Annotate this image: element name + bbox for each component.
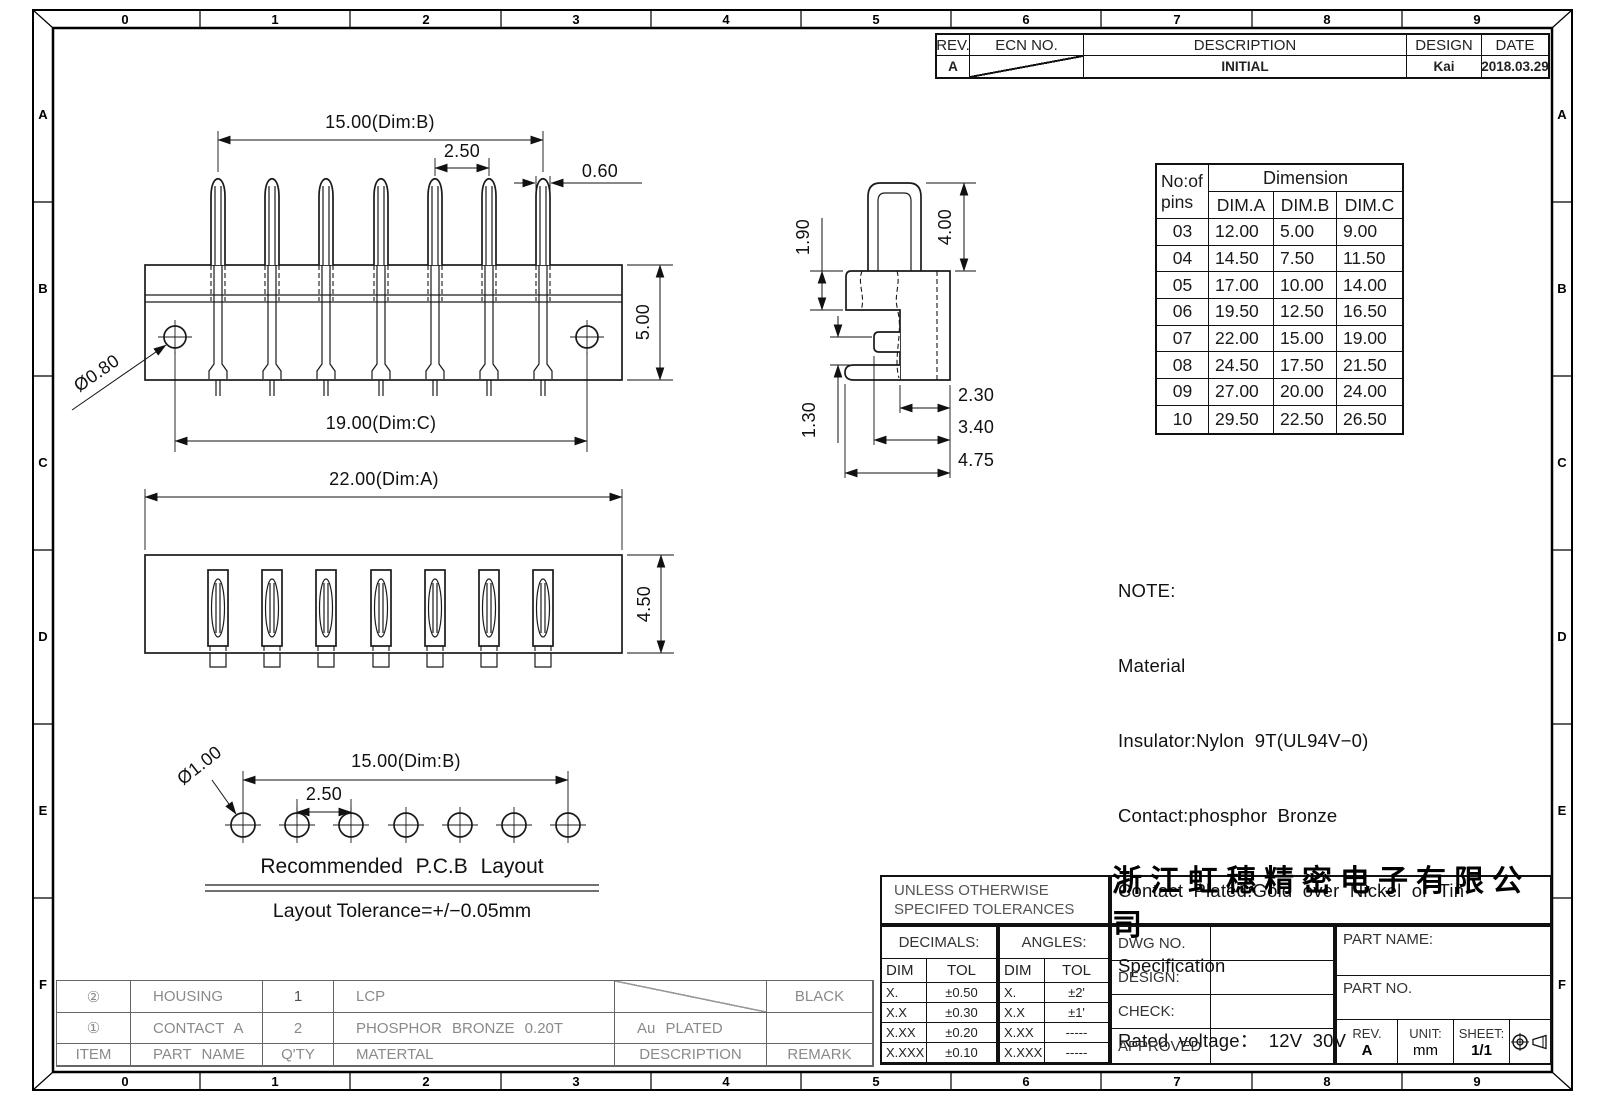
ecn-header: ECN NO. (970, 35, 1084, 56)
dimension-group-header: Dimension (1209, 165, 1402, 192)
sheet-value: 1/1 (1471, 1042, 1492, 1059)
cell: 12.50 (1274, 299, 1337, 326)
design-value (1211, 961, 1333, 994)
top-view: 22.00(Dim:A) 4.50 (145, 469, 674, 667)
unit-value: mm (1413, 1042, 1438, 1059)
cell: 08 (1157, 352, 1209, 379)
cell: 04 (1157, 246, 1209, 273)
contact-stub (874, 332, 900, 352)
description-header: DESCRIPTION (1084, 35, 1407, 56)
dim-label: 2.30 (958, 385, 994, 405)
cell: 22.00 (1209, 326, 1274, 353)
grid-label: 5 (872, 12, 879, 27)
unit-cell: UNIT: mm (1398, 1020, 1454, 1063)
angles-tolerance-table: ANGLES: DIM TOL X. ±2' X.X ±1' X.XX ----… (998, 925, 1110, 1065)
grid-label: 1 (271, 12, 278, 27)
rev-value: A (1362, 1042, 1373, 1059)
grid-label: 4 (722, 1074, 730, 1089)
pcb-hole (388, 807, 424, 843)
grid-label: 9 (1473, 12, 1480, 27)
dim-col-header: DIM (1000, 959, 1045, 983)
cell: X.X (882, 1003, 927, 1023)
cell: 15.00 (1274, 326, 1337, 353)
approved-value (1211, 1029, 1333, 1063)
cell: 07 (1157, 326, 1209, 353)
cell: 9.00 (1337, 219, 1402, 246)
cell: 06 (1157, 299, 1209, 326)
cell: 19.00 (1337, 326, 1402, 353)
tolerance-note-line2: SPECIFED TOLERANCES (894, 900, 1108, 919)
cell: X. (882, 983, 927, 1003)
cell: X.XX (1000, 1023, 1045, 1043)
design-value: Kai (1407, 56, 1482, 77)
cell: 05 (1157, 272, 1209, 299)
dim-label: 2.50 (306, 784, 342, 804)
layout-tolerance-note: Layout Tolerance=+/−0.05mm (273, 900, 531, 922)
dim-label: 22.00(Dim:A) (329, 469, 439, 489)
decimals-tolerance-table: DECIMALS: DIM TOL X. ±0.50 X.X ±0.30 X.X… (880, 925, 998, 1065)
pcb-hole (442, 807, 478, 843)
grid-label: 8 (1323, 12, 1330, 27)
grid-label: A (38, 107, 48, 122)
cell: X.XXX (1000, 1043, 1045, 1063)
part-no-label: PART NO. (1337, 976, 1550, 1020)
cell: ----- (1045, 1023, 1108, 1043)
dim-label: Ø1.00 (173, 742, 225, 789)
bom-qty: 2 (263, 1013, 334, 1044)
cell: 10.00 (1274, 272, 1337, 299)
cell: 26.50 (1337, 406, 1402, 433)
description-value: INITIAL (1084, 56, 1407, 77)
sheet-label: SHEET: (1459, 1025, 1505, 1042)
cell: 27.00 (1209, 379, 1274, 406)
cell: 5.00 (1274, 219, 1337, 246)
cell: ±2' (1045, 983, 1108, 1003)
grid-label: D (38, 629, 47, 644)
pin-loop (868, 183, 921, 271)
cell: 14.00 (1337, 272, 1402, 299)
part-info-block: PART NAME: PART NO. REV. A UNIT: mm SHEE… (1335, 925, 1552, 1065)
bom-description: Au PLATED (615, 1013, 767, 1044)
grid-label: E (1558, 803, 1567, 818)
cell: 12.00 (1209, 219, 1274, 246)
rev-cell: REV. A (1337, 1020, 1398, 1063)
check-label: CHECK: (1112, 995, 1211, 1028)
grid-label: 6 (1022, 1074, 1029, 1089)
grid-label: E (39, 803, 48, 818)
dim-label: 15.00(Dim:B) (325, 112, 435, 132)
grid-label: 2 (422, 1074, 429, 1089)
solder-tail (845, 365, 900, 380)
dwg-no-label: DWG NO. (1112, 927, 1211, 960)
date-value: 2018.03.29 (1482, 56, 1548, 77)
cell: 16.50 (1337, 299, 1402, 326)
cell: 20.00 (1274, 379, 1337, 406)
projection-symbol-cell (1510, 1020, 1550, 1063)
decimals-label: DECIMALS: (882, 927, 996, 959)
bom-header-material: MATERTAL (334, 1044, 615, 1066)
dim-c-header: DIM.C (1337, 192, 1402, 219)
dim-label: 1.90 (793, 219, 813, 255)
bom-material: PHOSPHOR BRONZE 0.20T (334, 1013, 615, 1044)
cell: 10 (1157, 406, 1209, 433)
unit-label: UNIT: (1409, 1025, 1442, 1042)
grid-label: 5 (872, 1074, 879, 1089)
rev-header: REV. (937, 35, 970, 56)
rev-value: A (937, 56, 970, 77)
grid-label: C (1557, 455, 1567, 470)
pcb-hole (225, 807, 261, 843)
dim-label: 15.00(Dim:B) (351, 751, 461, 771)
design-header: DESIGN (1407, 35, 1482, 56)
bom-table: ② HOUSING 1 LCP BLACK ① CONTACT A 2 PHOS… (56, 980, 874, 1067)
cell: ±0.30 (927, 1003, 996, 1023)
cell: ±1' (1045, 1003, 1108, 1023)
pins-header-line2: pins (1161, 192, 1193, 213)
bom-qty: 1 (263, 981, 334, 1013)
bom-description (615, 981, 767, 1013)
grid-label: F (1558, 977, 1566, 992)
bom-header-remark: REMARK (767, 1044, 873, 1066)
dim-label: 19.00(Dim:C) (326, 413, 437, 433)
grid-label: 3 (572, 12, 579, 27)
note-line: Insulator:Nylon 9T(UL94V−0) (1118, 728, 1464, 753)
sheet-cell: SHEET: 1/1 (1454, 1020, 1510, 1063)
tolerance-note-line1: UNLESS OTHERWISE (894, 881, 1108, 900)
bom-remark: BLACK (767, 981, 873, 1013)
bom-header-description: DESCRIPTION (615, 1044, 767, 1066)
bom-item: ① (57, 1013, 131, 1044)
bom-remark (767, 1013, 873, 1044)
design-label: DESIGN: (1112, 961, 1211, 994)
cell: 7.50 (1274, 246, 1337, 273)
bom-item: ② (57, 981, 131, 1013)
drawing-sheet: 0 1 2 3 4 5 6 7 8 9 0 1 2 3 4 5 6 7 8 9 … (0, 0, 1605, 1100)
cell: X. (1000, 983, 1045, 1003)
grid-label: 0 (121, 1074, 128, 1089)
cell: 22.50 (1274, 406, 1337, 433)
cell: X.XXX (882, 1043, 927, 1063)
note-line: Material (1118, 653, 1464, 678)
pins-header-line1: No:of (1161, 171, 1203, 192)
dwg-no-value (1211, 927, 1333, 960)
grid-ticks-left (33, 202, 53, 898)
ecn-value (970, 56, 1084, 77)
grid-label: C (38, 455, 48, 470)
company-name: 浙江虹穗精密电子有限公司 (1110, 875, 1552, 925)
dim-label: 1.30 (799, 402, 819, 438)
pcb-layout-caption: Recommended P.C.B Layout (260, 855, 543, 878)
cell: ±0.10 (927, 1043, 996, 1063)
cell: ±0.50 (927, 983, 996, 1003)
cell: X.X (1000, 1003, 1045, 1023)
side-view: 4.00 1.90 1.30 2.30 3.40 4.75 (793, 183, 994, 478)
dim-label: 0.60 (582, 161, 618, 181)
cell: 29.50 (1209, 406, 1274, 433)
grid-label: F (39, 977, 47, 992)
cell: 24.00 (1337, 379, 1402, 406)
note-line: NOTE: (1118, 578, 1464, 603)
dim-label: 4.00 (935, 209, 955, 245)
bom-header-item: ITEM (57, 1044, 131, 1066)
bom-header-part-name: PART NAME (131, 1044, 263, 1066)
grid-label: A (1557, 107, 1567, 122)
cell: 09 (1157, 379, 1209, 406)
dim-label: 4.50 (634, 586, 654, 622)
grid-label: D (1557, 629, 1566, 644)
dim-b-header: DIM.B (1274, 192, 1337, 219)
cell: ----- (1045, 1043, 1108, 1063)
dim-col-header: DIM (882, 959, 927, 983)
cell: 03 (1157, 219, 1209, 246)
grid-label: 1 (271, 1074, 278, 1089)
grid-label: 2 (422, 12, 429, 27)
cell: 24.50 (1209, 352, 1274, 379)
grid-ticks-top (200, 10, 1402, 28)
revision-table: REV. ECN NO. DESCRIPTION DESIGN DATE A I… (935, 33, 1550, 79)
tol-col-header: TOL (1045, 959, 1108, 983)
pins-header: No:of pins (1157, 165, 1209, 219)
dim-label: 5.00 (633, 304, 653, 340)
dim-label: 2.50 (444, 141, 480, 161)
grid-label: 7 (1173, 12, 1180, 27)
part-name-label: PART NAME: (1337, 927, 1550, 976)
grid-label: B (38, 281, 47, 296)
cell: 19.50 (1209, 299, 1274, 326)
cell: 11.50 (1337, 246, 1402, 273)
pcb-hole (496, 807, 532, 843)
grid-label: 3 (572, 1074, 579, 1089)
grid-label: 6 (1022, 12, 1029, 27)
grid-label: 4 (722, 12, 730, 27)
dimension-table: No:of pins Dimension DIM.A DIM.B DIM.C 0… (1155, 163, 1404, 435)
dim-label: 3.40 (958, 417, 994, 437)
approval-block: DWG NO. DESIGN: CHECK: APPROVED (1110, 925, 1335, 1065)
bom-material: LCP (334, 981, 615, 1013)
pcb-hole (550, 807, 586, 843)
bom-part-name: HOUSING (131, 981, 263, 1013)
dim-label: Ø0.80 (70, 350, 123, 395)
cell: ±0.20 (927, 1023, 996, 1043)
tolerance-note: UNLESS OTHERWISE SPECIFED TOLERANCES (880, 875, 1110, 925)
approved-label: APPROVED (1112, 1029, 1211, 1063)
angles-label: ANGLES: (1000, 927, 1108, 959)
grid-label: 9 (1473, 1074, 1480, 1089)
tol-col-header: TOL (927, 959, 996, 983)
cell: 14.50 (1209, 246, 1274, 273)
note-line: Contact:phosphor Bronze (1118, 803, 1464, 828)
cell: 17.50 (1274, 352, 1337, 379)
grid-ticks-right (1552, 202, 1572, 898)
cell: 17.00 (1209, 272, 1274, 299)
grid-label: 0 (121, 12, 128, 27)
cell: 21.50 (1337, 352, 1402, 379)
check-value (1211, 995, 1333, 1028)
date-header: DATE (1482, 35, 1548, 56)
front-view: 15.00(Dim:B) 2.50 0.60 5.00 Ø0.80 19.00(… (70, 112, 673, 452)
pcb-layout-view: Ø1.00 15.00(Dim:B) 2.50 Recommended P.C.… (173, 742, 599, 922)
rev-label: REV. (1352, 1025, 1381, 1042)
dim-label: 4.75 (958, 450, 994, 470)
cell: X.XX (882, 1023, 927, 1043)
bom-part-name: CONTACT A (131, 1013, 263, 1044)
grid-label: B (1557, 281, 1566, 296)
dim-a-header: DIM.A (1209, 192, 1274, 219)
first-angle-projection-icon (1510, 1031, 1550, 1053)
bom-header-qty: Q'TY (263, 1044, 334, 1066)
